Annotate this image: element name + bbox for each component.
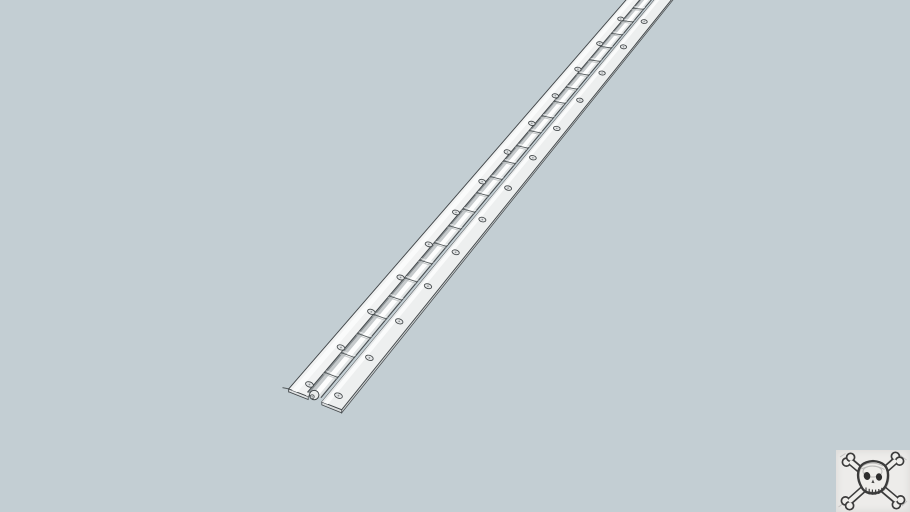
creator-watermark [836, 450, 910, 512]
hinge-end-cap-and-pin [310, 390, 319, 399]
model-viewport [0, 0, 910, 512]
model-viewport-canvas[interactable] [0, 0, 910, 512]
skull-crossbones-icon [836, 450, 910, 512]
skull [858, 461, 889, 495]
